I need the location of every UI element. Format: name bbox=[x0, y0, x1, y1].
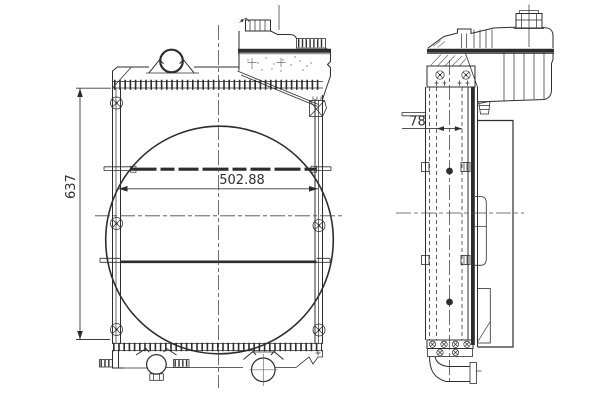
filler-neck bbox=[160, 50, 183, 73]
front-centerlines bbox=[95, 25, 345, 388]
radiator-technical-drawing: 637 bbox=[0, 0, 600, 400]
hose-clamp-bracket bbox=[310, 97, 327, 117]
dimension-core-depth: 78 bbox=[402, 115, 462, 132]
fan-hub-profile bbox=[475, 197, 487, 266]
arrow-left-icon bbox=[119, 186, 128, 192]
arrow-right-icon bbox=[309, 186, 318, 192]
dim-text-width: 502.88 bbox=[219, 173, 265, 188]
tank-stipple bbox=[247, 56, 311, 71]
plate-bolt bbox=[464, 341, 470, 347]
front-view: 637 bbox=[64, 5, 345, 388]
pressure-cap bbox=[246, 20, 271, 31]
dim-text-depth: 78 bbox=[409, 115, 426, 130]
dim-text-height: 637 bbox=[64, 174, 79, 199]
fan-shroud-ring bbox=[106, 126, 334, 354]
side-lower-tank bbox=[428, 349, 473, 357]
arrow-left-icon bbox=[437, 126, 444, 131]
plate-bolt bbox=[452, 349, 458, 355]
plate-bolt bbox=[429, 341, 435, 347]
center-marks bbox=[248, 58, 286, 67]
plate-bolt bbox=[437, 349, 443, 355]
side-clips bbox=[422, 163, 471, 265]
outlet-right bbox=[244, 352, 284, 387]
mount-pin bbox=[446, 299, 453, 306]
header-tank bbox=[113, 50, 240, 88]
dimension-overall-height: 637 bbox=[64, 88, 111, 339]
shroud-bracket bbox=[478, 289, 491, 344]
side-fan-shroud bbox=[475, 121, 513, 348]
plate-bolt bbox=[436, 71, 444, 79]
plate-bolt bbox=[441, 341, 447, 347]
plate-bolt bbox=[462, 71, 470, 79]
side-core bbox=[402, 60, 478, 384]
side-bottom-outlet bbox=[430, 357, 482, 384]
arrow-up-icon bbox=[77, 89, 83, 98]
expansion-tank bbox=[238, 5, 332, 117]
plate-bolt bbox=[452, 341, 458, 347]
cross-members bbox=[100, 166, 331, 262]
outlet-left bbox=[136, 349, 177, 381]
drawing-canvas: 637 bbox=[0, 0, 600, 400]
side-expansion-tank bbox=[427, 5, 554, 115]
arrow-down-icon bbox=[77, 331, 83, 340]
top-crimp-strip bbox=[112, 82, 323, 89]
side-view: 78 bbox=[396, 5, 554, 385]
shroud-mount-bar bbox=[471, 87, 475, 345]
arrow-right-icon bbox=[455, 126, 462, 131]
outlet-port-left bbox=[147, 355, 167, 375]
mount-pin bbox=[446, 168, 453, 175]
pipe-flange bbox=[470, 363, 477, 384]
